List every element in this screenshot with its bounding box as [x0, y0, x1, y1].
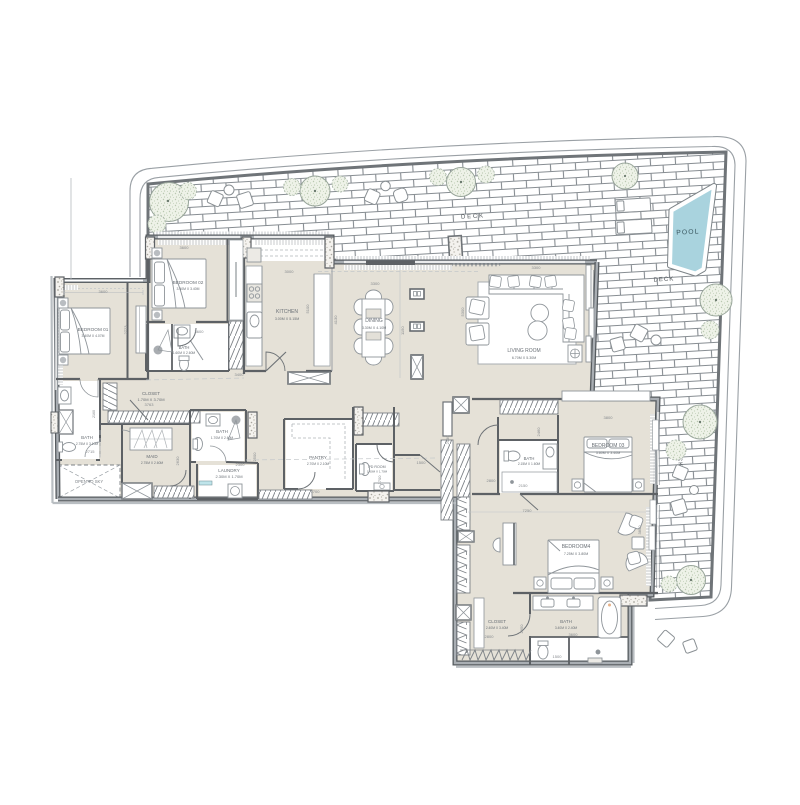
- svg-text:1.60M X 2.60M: 1.60M X 2.60M: [173, 351, 196, 355]
- svg-text:BATH: BATH: [524, 456, 535, 461]
- svg-text:7.25M X 3.80M: 7.25M X 3.80M: [564, 552, 588, 556]
- svg-text:2500: 2500: [252, 452, 257, 462]
- svg-text:MAID: MAID: [146, 454, 158, 459]
- svg-text:2300: 2300: [236, 462, 246, 467]
- svg-text:2715: 2715: [86, 449, 96, 454]
- svg-text:BEDROOM 02: BEDROOM 02: [173, 280, 204, 285]
- svg-text:2160: 2160: [92, 410, 96, 418]
- svg-text:3.40M X 4.07M: 3.40M X 4.07M: [82, 334, 105, 338]
- svg-text:5100: 5100: [305, 304, 310, 314]
- svg-text:2.30M X 1.70M: 2.30M X 1.70M: [215, 474, 242, 479]
- svg-text:2723: 2723: [123, 325, 128, 335]
- svg-text:2800: 2800: [487, 478, 497, 483]
- svg-text:3.60M X 3.40M: 3.60M X 3.40M: [596, 451, 620, 455]
- svg-text:2.15M X 1.60M: 2.15M X 1.60M: [518, 462, 541, 466]
- svg-text:3.40M X 2.40M: 3.40M X 2.40M: [555, 626, 578, 630]
- svg-text:BATH: BATH: [179, 345, 190, 350]
- svg-text:3.00M X 5.15M: 3.00M X 5.15M: [275, 317, 299, 321]
- svg-text:DECK: DECK: [653, 276, 674, 283]
- svg-text:1.70M X 2.60M: 1.70M X 2.60M: [211, 436, 234, 440]
- svg-text:6.70M X 5.30M: 6.70M X 5.30M: [512, 356, 536, 360]
- svg-text:PD ROOM: PD ROOM: [368, 465, 385, 469]
- svg-text:OPEN TO SKY: OPEN TO SKY: [75, 479, 103, 484]
- svg-text:CLOSET: CLOSET: [488, 619, 506, 624]
- svg-text:3763: 3763: [145, 402, 155, 407]
- svg-text:4130: 4130: [333, 315, 338, 325]
- svg-text:PANTRY: PANTRY: [309, 455, 327, 460]
- svg-text:7250: 7250: [523, 508, 533, 513]
- svg-text:2.75M X 2.60M: 2.75M X 2.60M: [141, 461, 164, 465]
- svg-text:1500: 1500: [417, 460, 427, 465]
- svg-text:3000: 3000: [285, 269, 295, 274]
- svg-text:2850: 2850: [519, 624, 524, 634]
- svg-text:2460: 2460: [536, 427, 541, 437]
- svg-text:2.70M X 2.10M: 2.70M X 2.10M: [307, 462, 330, 466]
- svg-text:3600: 3600: [195, 329, 205, 334]
- svg-text:3600: 3600: [99, 289, 109, 294]
- svg-text:3300: 3300: [532, 265, 542, 270]
- svg-text:LAUNDRY: LAUNDRY: [218, 468, 239, 473]
- svg-text:3800: 3800: [604, 415, 614, 420]
- svg-text:3600: 3600: [569, 632, 579, 637]
- svg-text:LIVING ROOM: LIVING ROOM: [507, 348, 540, 354]
- svg-text:BATH: BATH: [216, 429, 228, 434]
- svg-text:CLOSET: CLOSET: [142, 391, 160, 396]
- svg-text:BEDROOM4: BEDROOM4: [562, 544, 591, 550]
- svg-text:2.40M X 3.40M: 2.40M X 3.40M: [486, 626, 509, 630]
- svg-text:1150: 1150: [400, 326, 405, 335]
- svg-text:DINING: DINING: [365, 318, 383, 324]
- svg-text:5300: 5300: [460, 307, 465, 317]
- svg-text:BATH: BATH: [81, 435, 93, 440]
- svg-text:3700: 3700: [311, 489, 321, 494]
- svg-text:2030: 2030: [445, 435, 450, 445]
- svg-text:3400: 3400: [235, 372, 245, 377]
- svg-text:2630: 2630: [175, 456, 180, 466]
- svg-text:KITCHEN: KITCHEN: [276, 309, 298, 315]
- svg-text:BATH: BATH: [560, 619, 572, 624]
- svg-text:1500: 1500: [553, 654, 563, 659]
- svg-text:2.75M X 3.10M: 2.75M X 3.10M: [76, 442, 99, 446]
- svg-text:3600: 3600: [180, 245, 190, 250]
- svg-text:BEDROOM 03: BEDROOM 03: [592, 443, 625, 449]
- svg-text:3.30M X 4.10M: 3.30M X 4.10M: [362, 326, 386, 330]
- svg-text:BEDROOM 01: BEDROOM 01: [78, 327, 109, 332]
- svg-text:1.60M X 1.70M: 1.60M X 1.70M: [367, 470, 388, 474]
- svg-text:3300: 3300: [371, 281, 381, 286]
- svg-text:3.40M X 3.40M: 3.40M X 3.40M: [177, 287, 200, 291]
- svg-text:2150: 2150: [519, 483, 529, 488]
- svg-text:1700: 1700: [377, 475, 382, 485]
- svg-text:POOL: POOL: [676, 228, 700, 236]
- svg-text:2800: 2800: [485, 634, 495, 639]
- svg-text:3800: 3800: [637, 525, 642, 535]
